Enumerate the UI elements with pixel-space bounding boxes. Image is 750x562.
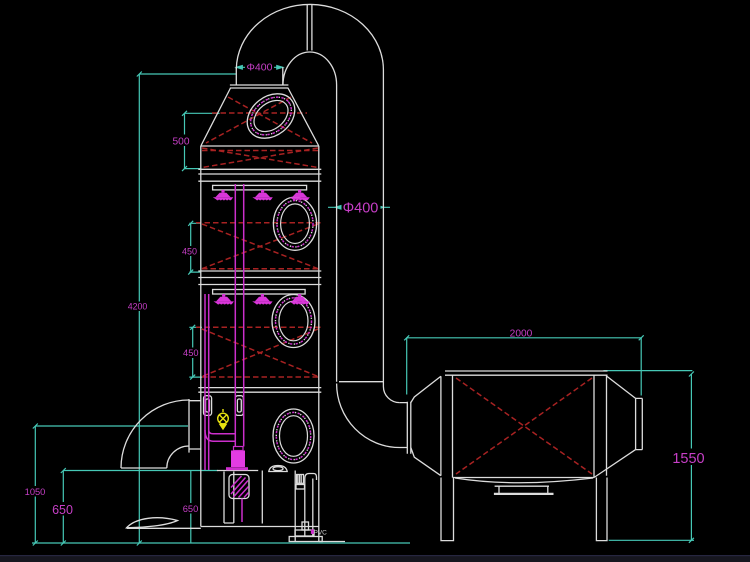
svg-text:2000: 2000 [510, 329, 533, 340]
svg-text:500: 500 [173, 136, 190, 147]
svg-text:4200: 4200 [128, 302, 148, 312]
svg-text:650: 650 [183, 504, 199, 514]
svg-text:Φ400: Φ400 [343, 201, 379, 217]
svg-text:450: 450 [183, 348, 199, 358]
svg-text:650: 650 [52, 503, 73, 517]
svg-text:1550: 1550 [672, 451, 704, 467]
svg-text:PVC: PVC [314, 530, 328, 537]
svg-text:450: 450 [182, 246, 197, 256]
svg-text:1050: 1050 [25, 487, 46, 497]
svg-text:Φ400: Φ400 [247, 62, 273, 74]
